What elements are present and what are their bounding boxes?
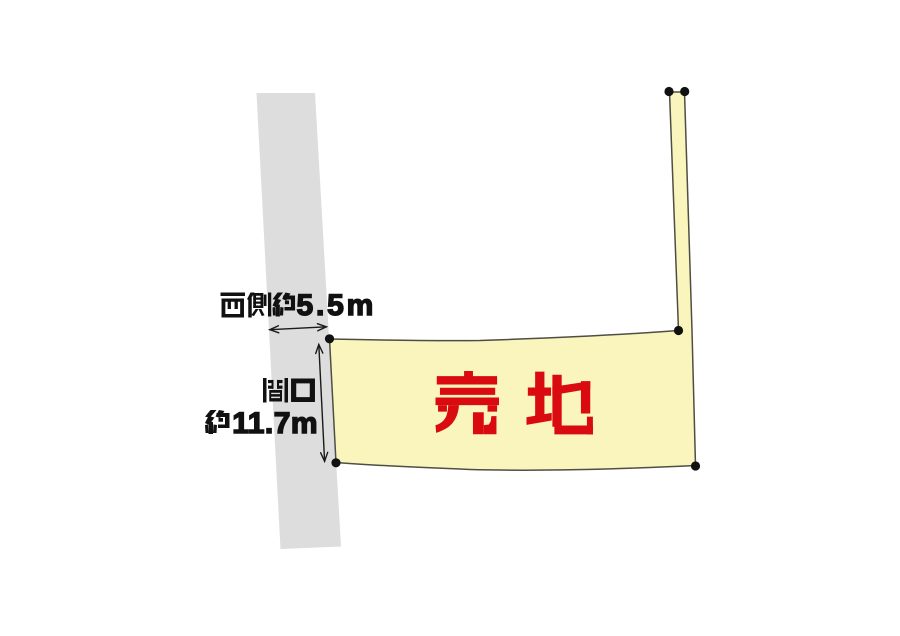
svg-text:5.5m: 5.5m [297, 289, 377, 322]
svg-text:11.7m: 11.7m [232, 407, 318, 440]
